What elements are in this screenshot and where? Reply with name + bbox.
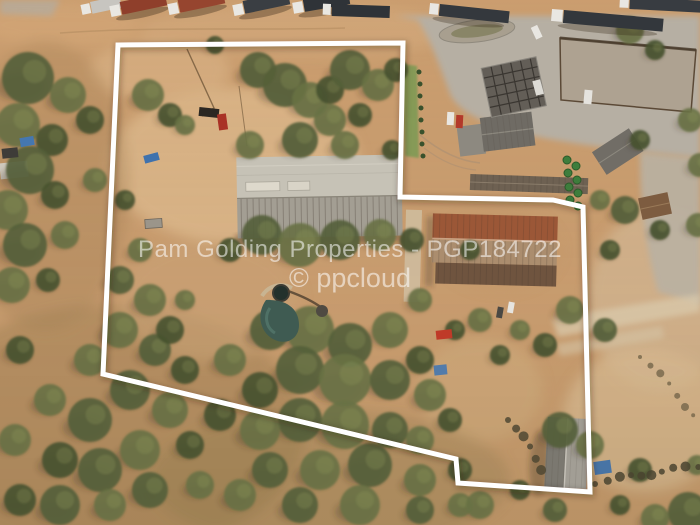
tree-highlight (296, 492, 312, 508)
tree-highlight (93, 172, 104, 183)
tree-highlight (417, 430, 430, 443)
shrub (669, 464, 677, 472)
tree-highlight (556, 417, 572, 433)
shrub (519, 431, 529, 441)
tree-highlight (658, 223, 667, 232)
skylight (288, 181, 310, 190)
tree-highlight (123, 193, 132, 202)
tree-highlight (145, 84, 159, 98)
tree-highlight (49, 129, 63, 143)
tree-highlight (366, 450, 386, 470)
tree-highlight (25, 153, 47, 175)
tree-highlight (281, 70, 301, 90)
tree-highlight (390, 143, 399, 152)
red-car (436, 329, 453, 340)
tree-highlight (342, 135, 355, 148)
tree-highlight (247, 135, 260, 148)
tree-highlight (336, 226, 354, 244)
shrub (512, 425, 520, 433)
shrub (646, 470, 656, 480)
trailer (145, 218, 163, 228)
tree-highlight (448, 412, 459, 423)
tree-highlight (117, 270, 130, 283)
tree-highlight (295, 353, 317, 375)
tree-highlight (116, 317, 132, 333)
kraal-fence (560, 38, 696, 112)
tree-highlight (553, 502, 564, 513)
shrub (638, 355, 642, 359)
tree-highlight (96, 455, 116, 475)
tree-highlight (316, 456, 334, 474)
shrub (656, 369, 664, 377)
tree-highlight (478, 312, 489, 323)
tree-highlight (386, 417, 402, 433)
shrub (659, 469, 665, 475)
tree-highlight (418, 292, 429, 303)
tree-highlight (86, 405, 106, 425)
round-planter (316, 305, 328, 317)
tree-highlight (386, 317, 402, 333)
tree-highlight (47, 389, 61, 403)
tree-highlight (237, 484, 251, 498)
shrub (604, 477, 612, 485)
tree-highlight (296, 230, 316, 250)
tree-highlight (87, 110, 100, 123)
tree-highlight (107, 494, 121, 508)
shrub (527, 443, 533, 449)
tree-highlight (187, 435, 200, 448)
blue-tarp (593, 460, 612, 475)
shrub (681, 461, 691, 471)
tree-highlight (183, 293, 192, 302)
shrub (637, 472, 645, 480)
tree-highlight (17, 489, 31, 503)
tree-highlight (653, 43, 662, 52)
tree-highlight (12, 429, 26, 443)
tree-highlight (346, 330, 366, 350)
shrub (681, 403, 689, 411)
tree-highlight (608, 243, 617, 252)
tree-highlight (56, 447, 72, 463)
tree-highlight (227, 349, 241, 363)
white-van (583, 90, 592, 105)
tree-highlight (146, 477, 162, 493)
tree-highlight (358, 107, 369, 118)
shrub (536, 465, 546, 475)
tree-highlight (340, 408, 362, 430)
tree-highlight (228, 242, 239, 253)
tree-highlight (4, 196, 22, 214)
tree-highlight (453, 323, 462, 332)
shrub (615, 472, 625, 482)
white-car (447, 112, 455, 125)
spa-tub (273, 285, 289, 301)
tree-highlight (598, 193, 607, 202)
tree-highlight (147, 289, 161, 303)
tree-highlight (138, 242, 149, 253)
tree-highlight (266, 457, 282, 473)
tree-highlight (652, 508, 665, 521)
tree-highlight (638, 133, 647, 142)
red-car (456, 115, 464, 128)
tree-highlight (87, 349, 101, 363)
tree-highlight (498, 348, 507, 357)
tree-highlight (346, 56, 364, 74)
tree-highlight (64, 82, 80, 98)
tree-highlight (258, 221, 276, 239)
tree-highlight (417, 350, 430, 363)
aerial-scene (0, 0, 700, 525)
tree-highlight (17, 340, 30, 353)
tree-highlight (567, 300, 580, 313)
tree-highlight (327, 109, 341, 123)
tree-highlight (46, 272, 57, 283)
tree-highlight (197, 475, 210, 488)
tree-highlight (417, 469, 431, 483)
tree-highlight (688, 112, 699, 123)
tree-highlight (543, 337, 554, 348)
blue-tarp (434, 364, 448, 375)
shrub (647, 363, 653, 369)
tree-highlight (340, 362, 363, 385)
tree-highlight (477, 495, 490, 508)
tree-highlight (410, 232, 421, 243)
shrub (674, 393, 680, 399)
tree-highlight (168, 107, 179, 118)
tree-highlight (167, 320, 180, 333)
tree-highlight (518, 323, 527, 332)
tree-highlight (182, 360, 195, 373)
tree-highlight (356, 491, 374, 509)
tree-highlight (296, 127, 312, 143)
tree-highlight (468, 243, 477, 252)
tree-highlight (618, 498, 627, 507)
tree-highlight (638, 462, 649, 473)
tree-highlight (52, 185, 65, 198)
tree-highlight (14, 110, 34, 130)
shrub (628, 472, 634, 478)
tree-highlight (256, 377, 272, 393)
tree-highlight (377, 224, 391, 238)
truck (323, 4, 390, 18)
tree-highlight (183, 118, 192, 127)
tree-highlight (136, 436, 154, 454)
tree-highlight (56, 491, 74, 509)
skylight (246, 182, 280, 192)
tree-highlight (62, 225, 75, 238)
tree-highlight (8, 272, 24, 288)
shrub (505, 417, 511, 423)
shrub (691, 413, 695, 417)
aerial-photo: Pam Golding Properties - PGP184722 © ppc… (0, 0, 700, 525)
tree-highlight (622, 200, 635, 213)
tree-highlight (166, 397, 182, 413)
tree-highlight (23, 60, 46, 83)
tree-highlight (427, 384, 441, 398)
tree-highlight (386, 366, 404, 384)
shrub (532, 455, 540, 463)
shrub (667, 381, 671, 385)
tree-highlight (417, 500, 430, 513)
tree-highlight (603, 322, 614, 333)
tree-highlight (21, 230, 41, 250)
dark-vehicle (2, 147, 19, 159)
